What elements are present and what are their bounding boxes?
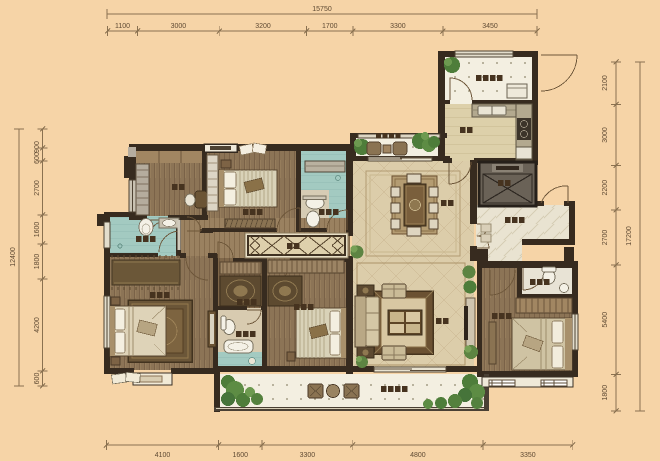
svg-text:3350: 3350 xyxy=(520,452,536,459)
svg-text:3300: 3300 xyxy=(300,452,316,459)
svg-text:600: 600 xyxy=(34,373,41,385)
svg-text:2200: 2200 xyxy=(602,180,609,196)
svg-text:12400: 12400 xyxy=(10,247,17,267)
svg-text:3300: 3300 xyxy=(390,23,406,30)
svg-text:3000: 3000 xyxy=(171,23,187,30)
svg-text:2100: 2100 xyxy=(602,75,609,91)
svg-text:4200: 4200 xyxy=(34,317,41,333)
svg-text:1700: 1700 xyxy=(322,23,338,30)
svg-text:4800: 4800 xyxy=(410,452,426,459)
svg-text:3450: 3450 xyxy=(482,23,498,30)
svg-text:2700: 2700 xyxy=(602,230,609,246)
svg-text:17200: 17200 xyxy=(626,226,633,246)
svg-text:1800: 1800 xyxy=(34,254,41,270)
svg-text:1100: 1100 xyxy=(115,23,130,30)
svg-text:1600: 1600 xyxy=(233,452,249,459)
svg-text:5400: 5400 xyxy=(602,312,609,328)
svg-text:2700: 2700 xyxy=(34,180,41,196)
svg-text:600: 600 xyxy=(34,152,41,164)
svg-text:1800: 1800 xyxy=(602,385,609,401)
svg-text:4100: 4100 xyxy=(155,452,171,459)
svg-text:3200: 3200 xyxy=(255,23,271,30)
svg-text:900: 900 xyxy=(34,141,41,153)
svg-text:3000: 3000 xyxy=(602,127,609,143)
svg-text:15750: 15750 xyxy=(312,6,332,13)
svg-text:1600: 1600 xyxy=(34,222,41,238)
